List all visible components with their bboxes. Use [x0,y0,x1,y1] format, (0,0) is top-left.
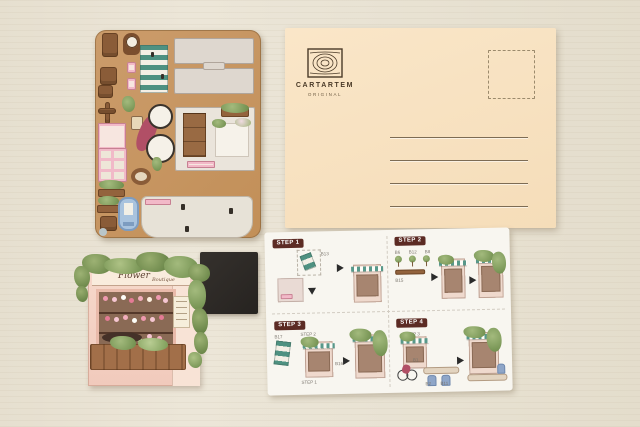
address-line [390,183,528,184]
plant-part-icon [395,256,402,263]
pink-tag-piece-icon [127,62,136,73]
part-label: B16 [335,361,343,366]
diagram-shop-window [356,274,378,296]
window-pane [101,161,111,168]
shop-sign-subtitle: Boutique [152,277,175,283]
garland-sprig [235,118,251,127]
garland-sprig [212,119,226,128]
lamp-arm [98,108,116,114]
step-badge: STEP 2 [394,236,425,246]
diagram-greenery [463,326,485,338]
address-line [390,206,528,207]
diagram-greenery [486,328,501,352]
arrow-icon [308,284,318,294]
brand-name: CARTARTEM [295,82,355,89]
step-panel-3: STEP 3 B17 STEP 2 B16 STEP 1 [270,316,388,391]
flower-dots [103,296,108,301]
diagram-greenery [372,330,388,356]
door-detail [123,222,134,226]
cut-slit [161,74,164,79]
instruction-sheet: STEP 1 B13 STEP 2 B6 B12 B8 [264,227,512,395]
part-label: B6 [395,250,401,255]
diagram-shop-stage [305,341,334,378]
diagram-greenery [474,250,494,262]
diagram-shop-awning [351,266,383,272]
diagram-awning-piece [299,252,316,271]
diagram-final-shop [466,330,505,383]
base-platform-icon [423,367,459,375]
bicycle-part-icon [397,363,415,379]
window-pane [114,151,124,158]
part-label: B11 [440,381,448,386]
diagram-shop-window [444,268,462,292]
diagram-shop-stage [354,334,385,379]
plant-part-icon [423,255,430,262]
part-label: B8 [425,249,431,254]
cut-slit [185,226,189,232]
diagram-shop-stage [468,332,499,375]
part-label: B12 [409,249,417,254]
part-label: B17 [274,334,282,339]
door-window [124,203,133,215]
vine-greenery [188,352,202,368]
pink-floor-piece [98,123,126,150]
diagram-pink-strip [281,294,293,299]
window-pane [114,172,124,179]
shelf-piece-icon [98,85,113,98]
plant-piece-icon [152,157,162,171]
bicycle-wheel [148,104,173,129]
arrow-icon [457,356,464,364]
window-pane [101,151,111,158]
clock-piece-icon [123,33,140,55]
basket-piece-icon [131,168,151,185]
photo-scene: CARTARTEM ORIGINAL Flower Boutique [0,0,640,427]
postcard: CARTARTEM ORIGINAL [285,28,556,228]
cut-slit [151,52,154,57]
pink-strip-piece [187,161,215,168]
window-pane [114,161,124,168]
planter-greens [138,338,168,351]
door-piece-icon [118,197,139,231]
vine-greenery [194,332,208,354]
cut-slit [181,204,185,210]
vine-greenery [76,286,88,302]
chair-piece-icon [100,67,117,85]
awning-piece-icon [140,45,168,93]
diagram-greenery [438,255,454,265]
arrow-icon [469,276,476,284]
arrow-icon [431,273,438,281]
arrow-icon [343,357,350,365]
chair-part-icon [497,364,505,374]
arrow-icon [333,264,343,274]
plant-part-icon [409,255,416,262]
part-label: B2 [425,381,431,386]
diagram-awning-piece [273,340,291,366]
planter-crate-piece [98,183,125,197]
menu-board [173,296,190,328]
lamp-piece-icon [98,102,116,124]
cut-slit [229,208,233,214]
window-grid [101,151,124,179]
diagram-wall-piece [277,278,303,303]
diagram-shop-window [308,351,330,371]
planter-crate-piece [97,199,120,213]
diagram-greenery [301,336,319,347]
part-label: B15 [395,278,403,283]
brand-logo-icon [307,48,343,78]
brand-tagline: ORIGINAL [295,92,355,97]
address-line [390,160,528,161]
diagram-shop-stage [478,256,504,299]
vine-greenery [192,308,208,334]
stamp-box [488,50,535,99]
wall-panel-piece [174,68,254,94]
clock-face [126,36,138,48]
wall-panel-piece [174,38,254,64]
step-panel-4: STEP 4 STEP 3 B1 B2 B11 [392,314,507,389]
flower-crate-greens [221,103,249,113]
punch-out-sheet [95,30,261,238]
planter-greens [110,336,136,350]
diagram-greenery [349,328,371,341]
window-frame-piece [98,148,127,182]
step-panel-1: STEP 1 B13 [268,234,386,311]
part-label: B1 [413,357,419,362]
shop-shelf [99,312,173,314]
part-label: STEP 1 [301,380,317,385]
step-panel-2: STEP 2 B6 B12 B8 B15 [390,232,505,309]
floor-pink-strip [145,199,171,205]
planter-crate-row [90,344,186,370]
shop-wall-panel [175,107,255,171]
chair-piece-icon [102,33,118,57]
diagram-shop-stage [441,258,466,298]
step-badge: STEP 3 [274,321,305,331]
diagram-awning-box [297,249,322,275]
cabinet-piece-icon [183,113,206,157]
garland-greenery [188,264,210,282]
address-line [390,137,528,138]
planter-box [97,205,120,213]
punch-hole [99,228,107,236]
bicycle-piece-icon [131,104,173,164]
vine-greenery [188,280,206,310]
vine-greenery [74,266,90,288]
menu-board-lines [176,301,187,324]
window-pane [101,172,111,179]
shelf-part-icon [395,269,425,275]
part-label: B13 [321,251,329,256]
assembled-flower-shop: Flower Boutique [76,256,210,390]
floor-base-piece [141,196,253,238]
diagram-greenery [399,331,415,341]
panel-tab [203,62,225,70]
pink-tag-piece-icon [127,78,136,90]
diagram-shop-stage [353,264,382,303]
window-cutout [215,123,249,157]
step-badge: STEP 4 [396,318,427,328]
step-badge: STEP 1 [272,239,303,249]
base-platform-icon [467,374,507,382]
diagram-greenery [492,252,506,274]
